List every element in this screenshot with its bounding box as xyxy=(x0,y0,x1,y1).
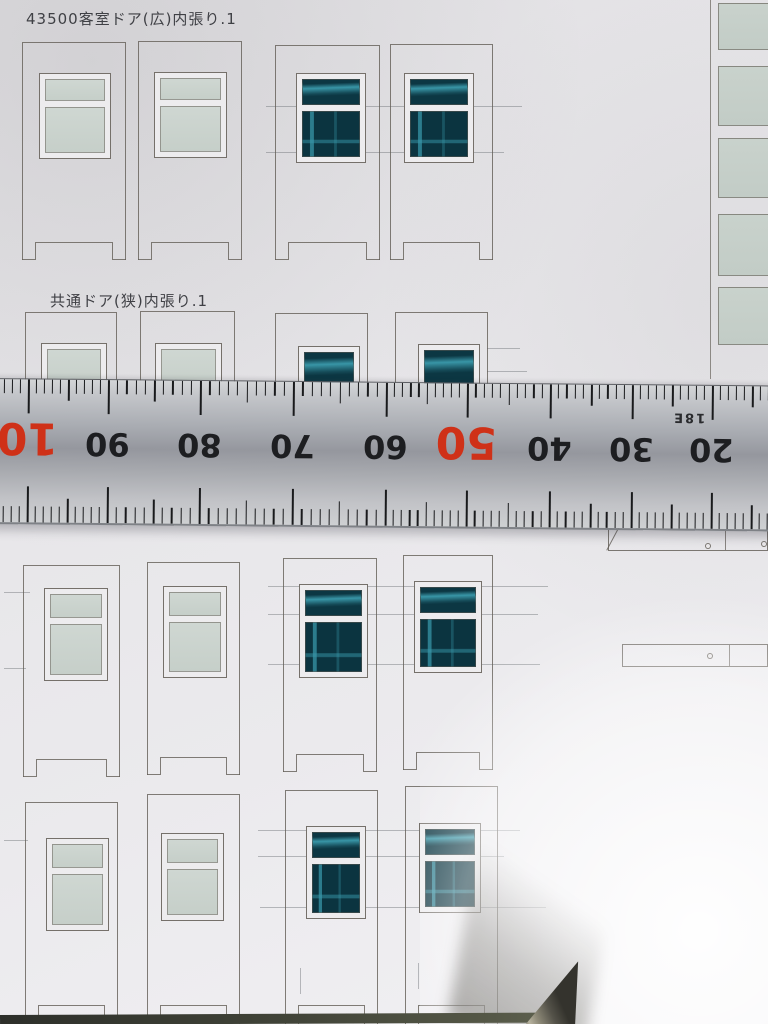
ruler-tick xyxy=(91,507,92,523)
side-part-rect xyxy=(718,3,768,50)
door-leg xyxy=(147,774,160,775)
door-window-frame xyxy=(44,588,108,681)
window-upper-pane xyxy=(52,844,103,868)
door-window-frame xyxy=(418,344,480,386)
ruler-tick xyxy=(482,511,483,527)
door-leg xyxy=(227,774,240,775)
ruler-number: 40 xyxy=(527,428,572,468)
ruler-tick xyxy=(200,381,203,415)
door-window-frame xyxy=(39,73,111,159)
ruler-tick xyxy=(264,509,265,525)
ruler-tick xyxy=(648,385,649,399)
ruler-tick xyxy=(357,510,358,526)
ruler-tick xyxy=(566,385,567,399)
ruler-tick xyxy=(490,511,491,527)
ruler-number: 20 xyxy=(689,430,734,470)
ruler-tick xyxy=(631,492,634,528)
ruler-tick xyxy=(565,512,566,528)
ruler-tick xyxy=(680,386,681,400)
ruler-tick xyxy=(574,385,575,399)
ruler-tick xyxy=(347,509,348,525)
door-bottom-notch xyxy=(403,242,480,260)
ruler-tick xyxy=(720,386,721,400)
ruler-tick xyxy=(459,383,460,397)
ruler-tick xyxy=(736,386,737,400)
ruler-tick xyxy=(75,507,76,523)
ruler-number: 80 xyxy=(177,425,222,465)
window-upper-pane xyxy=(425,829,475,855)
ruler-tick xyxy=(199,488,202,524)
ruler-tick xyxy=(550,384,553,418)
ruler-tick xyxy=(154,381,156,402)
door-window-frame xyxy=(46,838,109,931)
pencil-guide-line xyxy=(487,371,527,372)
side-part-rect xyxy=(718,214,768,276)
ruler-tick xyxy=(614,512,615,528)
window-lower-pane xyxy=(167,869,218,915)
sheet-label-section1: 43500客室ドア(広)内張り.1 xyxy=(26,8,237,29)
ruler-tick xyxy=(126,380,127,394)
ruler-tick xyxy=(581,512,582,528)
ruler-tick xyxy=(663,512,664,528)
door-window-frame xyxy=(296,73,366,163)
rivet-hole xyxy=(705,543,711,549)
door-window-frame xyxy=(154,72,227,158)
ruler-tick xyxy=(171,508,172,524)
ruler-tick xyxy=(417,510,418,526)
ruler-tick xyxy=(557,511,558,527)
ruler-tick xyxy=(237,381,238,395)
window-lower-pane xyxy=(50,624,102,675)
ruler-number: 50 xyxy=(436,421,498,462)
ruler-tick xyxy=(12,379,13,393)
ruler-tick xyxy=(434,383,435,397)
door-part xyxy=(283,558,377,772)
door-leg xyxy=(367,259,380,260)
window-lower-pane xyxy=(45,107,105,153)
window-lower-pane xyxy=(160,106,221,152)
door-leg xyxy=(23,776,36,777)
ruler-tick xyxy=(656,385,657,399)
ruler-tick xyxy=(573,512,574,528)
door-leg xyxy=(275,259,288,260)
door-part xyxy=(140,311,235,384)
ruler-tick xyxy=(655,512,656,528)
ruler-tick xyxy=(292,489,295,525)
ruler-tick xyxy=(386,383,389,417)
ruler-tick xyxy=(385,490,388,526)
door-part xyxy=(403,555,493,770)
ruler-tick xyxy=(181,381,182,395)
ruler-tick xyxy=(598,512,599,528)
ruler-tick xyxy=(311,382,312,396)
ruler-tick xyxy=(153,500,155,524)
ruler-tick xyxy=(28,379,31,413)
door-leg xyxy=(107,776,120,777)
ruler-tick xyxy=(500,384,501,398)
ruler-tick xyxy=(330,382,331,396)
ruler-tick xyxy=(36,379,37,393)
ruler-tick xyxy=(163,381,164,395)
ruler-tick xyxy=(162,508,163,524)
ruler-tick xyxy=(68,380,70,401)
ruler-tick xyxy=(339,382,341,403)
ruler-tick xyxy=(377,383,378,397)
ruler-tick xyxy=(695,513,696,529)
window-upper-pane xyxy=(169,592,221,616)
ruler-tick xyxy=(191,381,192,395)
rivet-hole xyxy=(761,541,767,547)
ruler-tick xyxy=(449,510,450,526)
door-part xyxy=(395,312,488,384)
ruler-tick xyxy=(76,380,77,394)
ruler-tick xyxy=(107,487,110,523)
pencil-guide-line xyxy=(487,348,520,349)
ruler-tick xyxy=(583,385,584,399)
ruler-tick xyxy=(508,384,510,405)
ruler-tick xyxy=(92,380,93,394)
door-window-frame xyxy=(414,581,482,673)
ruler-tick xyxy=(409,510,410,526)
ruler-tick xyxy=(256,382,257,396)
ruler-tick xyxy=(108,380,111,414)
ruler-tick xyxy=(218,381,219,395)
door-window-frame xyxy=(163,586,227,678)
door-part xyxy=(405,786,498,1024)
ruler-tick xyxy=(483,384,484,398)
door-part xyxy=(390,44,493,260)
ruler-number: 60 xyxy=(363,427,408,467)
ruler-tick xyxy=(60,380,61,394)
door-window-frame xyxy=(404,73,474,163)
window-pane xyxy=(424,350,474,386)
ruler-tick xyxy=(664,385,665,399)
ruler-tick xyxy=(135,380,136,394)
ruler-tick xyxy=(711,493,714,529)
ruler-tick xyxy=(43,506,44,522)
ruler-tick xyxy=(474,511,475,527)
ruler-tick xyxy=(265,382,266,396)
ruler-tick xyxy=(647,512,648,528)
ruler-tick xyxy=(20,379,21,393)
ruler-tick xyxy=(590,504,592,528)
rivet-hole xyxy=(707,653,713,659)
ruler-number: 70 xyxy=(270,426,315,466)
ruler-tick xyxy=(540,511,541,527)
window-lower-pane xyxy=(410,111,468,157)
ruler-number: 10 xyxy=(0,417,58,458)
window-lower-pane xyxy=(169,622,221,672)
door-bottom-notch xyxy=(288,242,367,260)
door-leg xyxy=(390,259,403,260)
ruler-tick xyxy=(284,382,285,396)
ruler-tick xyxy=(274,382,275,396)
window-upper-pane xyxy=(312,832,360,858)
ruler-tick xyxy=(117,380,118,394)
ruler-tick xyxy=(402,383,403,397)
ruler-tick xyxy=(236,508,237,524)
window-upper-pane xyxy=(45,79,105,101)
ruler-tick xyxy=(744,386,745,400)
ruler-tick xyxy=(375,510,376,526)
door-window-frame xyxy=(161,833,224,921)
ruler-tick xyxy=(172,381,173,395)
ruler-tick xyxy=(622,512,623,528)
ruler-tick xyxy=(83,507,84,523)
door-leg xyxy=(229,259,242,260)
ruler-tick xyxy=(228,381,229,395)
ruler-tick xyxy=(410,383,411,397)
ruler-tick xyxy=(51,507,52,523)
ruler-tick xyxy=(615,385,616,399)
door-leg xyxy=(22,259,35,260)
ruler-tick xyxy=(639,512,640,528)
ruler-tick xyxy=(475,384,476,398)
window-lower-pane xyxy=(420,619,476,667)
window-lower-pane xyxy=(425,861,475,907)
ruler-tick xyxy=(752,386,754,407)
ruler-tick xyxy=(27,486,30,522)
door-window-frame xyxy=(306,826,366,919)
ruler-side-marking: 18E xyxy=(664,409,714,424)
ruler-tick xyxy=(208,508,209,524)
door-part xyxy=(23,565,120,777)
ruler-tick xyxy=(433,510,434,526)
ruler-tick xyxy=(217,508,218,524)
ruler-tick xyxy=(467,384,470,418)
ruler-tick xyxy=(67,499,69,523)
door-part xyxy=(275,45,380,260)
ruler-tick xyxy=(640,385,641,399)
window-upper-pane xyxy=(305,590,362,616)
steel-ruler: 109080706050403020 18E xyxy=(0,378,768,532)
window-upper-pane xyxy=(420,587,476,613)
ruler-tick xyxy=(319,509,320,525)
ruler-tick xyxy=(189,508,190,524)
ruler-tick xyxy=(52,380,53,394)
thin-strip-part xyxy=(622,644,768,667)
ruler-tick xyxy=(517,384,518,398)
ruler-tick xyxy=(358,383,359,397)
ruler-tick xyxy=(84,380,85,394)
ruler-tick xyxy=(116,507,117,523)
ruler-tick xyxy=(367,383,368,397)
ruler-tick xyxy=(466,491,469,527)
ruler-tick xyxy=(679,513,680,529)
ruler-tick xyxy=(209,381,210,395)
door-part xyxy=(138,41,242,260)
door-leg xyxy=(113,259,126,260)
photo-papercraft-sheet-with-ruler: 43500客室ドア(広)内張り.1 共通ドア(狭)内張り.1 109080706… xyxy=(0,0,768,1024)
desk-edge xyxy=(0,1013,548,1024)
strip-seam-line xyxy=(729,645,730,666)
ruler-tick xyxy=(688,386,689,400)
side-part-rect xyxy=(718,66,768,126)
ruler-tick xyxy=(329,509,330,525)
ruler-number: 30 xyxy=(609,429,654,469)
door-leg xyxy=(138,259,151,260)
door-bottom-notch xyxy=(296,754,364,772)
door-part xyxy=(22,42,126,260)
ruler-tick xyxy=(525,384,526,398)
door-leg xyxy=(364,771,377,772)
door-bottom-notch xyxy=(416,752,480,770)
door-leg xyxy=(480,769,493,770)
side-part-rect xyxy=(718,138,768,198)
ruler-tick xyxy=(492,384,493,398)
ruler-tick xyxy=(254,509,255,525)
ruler-tick xyxy=(549,491,552,527)
side-part-rect xyxy=(718,287,768,345)
ruler-tick xyxy=(743,513,744,529)
door-bottom-notch xyxy=(35,242,113,260)
door-bottom-notch xyxy=(160,757,227,775)
ruler-tick xyxy=(728,386,729,400)
ruler-tick xyxy=(599,385,600,399)
ruler-tick xyxy=(338,501,340,525)
door-window-frame xyxy=(419,823,481,913)
ruler-tick xyxy=(134,507,135,523)
ruler-tick xyxy=(542,384,543,398)
door-leg xyxy=(283,771,296,772)
ruler-tick xyxy=(11,506,12,522)
ruler-tick xyxy=(3,506,4,522)
ruler-tick xyxy=(451,383,452,397)
ruler-tick xyxy=(727,513,728,529)
ruler-tick xyxy=(457,510,458,526)
ruler-tick xyxy=(125,507,126,523)
door-bottom-notch xyxy=(36,759,107,777)
ruler-tick xyxy=(59,507,60,523)
ruler-tick xyxy=(366,510,367,526)
ruler-tick xyxy=(524,511,525,527)
ruler-tick xyxy=(558,384,559,398)
window-upper-pane xyxy=(302,79,360,105)
ruler-tick xyxy=(273,509,274,525)
door-part xyxy=(147,562,240,775)
ruler-tick xyxy=(35,506,36,522)
ruler-tick xyxy=(719,513,720,529)
ruler-tick xyxy=(302,382,303,396)
door-part xyxy=(275,313,368,384)
door-part xyxy=(285,790,378,1024)
ruler-tick xyxy=(245,500,247,524)
ruler-tick xyxy=(145,380,146,394)
ruler-tick xyxy=(441,510,442,526)
ruler-tick xyxy=(632,385,635,419)
ruler-tick xyxy=(735,513,736,529)
ruler-tick xyxy=(349,382,350,396)
ruler-tick xyxy=(499,511,500,527)
door-part xyxy=(147,794,240,1024)
ruler-tick xyxy=(401,510,402,526)
window-upper-pane xyxy=(160,78,221,100)
ruler-tick xyxy=(607,385,608,399)
ruler-tick xyxy=(672,386,674,407)
ruler-tick xyxy=(44,379,45,393)
ruler-tick xyxy=(100,380,101,394)
window-lower-pane xyxy=(52,874,103,925)
ruler-tick xyxy=(246,381,248,402)
ruler-tick xyxy=(293,382,296,416)
ruler-number: 90 xyxy=(85,424,130,464)
door-part xyxy=(25,312,117,384)
ruler-tick xyxy=(310,509,311,525)
ruler-tick xyxy=(703,513,704,529)
ruler-tick xyxy=(4,379,5,393)
ruler-tick xyxy=(19,506,20,522)
window-upper-pane xyxy=(167,839,218,863)
ruler-tick xyxy=(606,512,607,528)
ruler-tick xyxy=(515,511,516,527)
door-part xyxy=(25,802,118,1024)
ruler-tick xyxy=(426,383,428,404)
ruler-tick xyxy=(443,383,444,397)
ruler-tick xyxy=(760,386,761,400)
ruler-tick xyxy=(671,505,673,529)
door-leg xyxy=(403,769,416,770)
ruler-numbers: 109080706050403020 xyxy=(0,379,768,387)
ruler-tick xyxy=(696,386,697,400)
window-upper-pane xyxy=(410,79,468,105)
ruler-tick xyxy=(751,505,753,529)
door-leg xyxy=(480,259,493,260)
ruler-tick xyxy=(394,383,395,397)
ruler-tick xyxy=(507,503,509,527)
ruler-tick xyxy=(591,385,593,406)
sheet-label-section2: 共通ドア(狭)内張り.1 xyxy=(50,290,208,311)
ruler-tick xyxy=(282,509,283,525)
ruler-tick xyxy=(226,508,227,524)
ruler-tick xyxy=(533,384,534,398)
door-window-frame xyxy=(299,584,368,678)
ruler-tick xyxy=(143,507,144,523)
window-lower-pane xyxy=(305,622,362,672)
ruler-tick xyxy=(321,382,322,396)
ruler-tick xyxy=(759,513,760,529)
ruler-tick xyxy=(393,510,394,526)
window-lower-pane xyxy=(302,111,360,157)
ruler-ticks xyxy=(0,379,768,387)
ruler-tick xyxy=(418,383,419,397)
ruler-tick xyxy=(704,386,705,400)
ruler-tick xyxy=(425,502,427,526)
ruler-tick xyxy=(687,513,688,529)
ruler-tick xyxy=(301,509,302,525)
ruler-tick xyxy=(624,385,625,399)
window-upper-pane xyxy=(50,594,102,618)
ruler-tick xyxy=(99,507,100,523)
door-bottom-notch xyxy=(151,242,229,260)
ruler-tick xyxy=(180,508,181,524)
window-lower-pane xyxy=(312,864,360,913)
sheet-divider-line xyxy=(710,0,711,379)
ruler-tick xyxy=(532,511,533,527)
